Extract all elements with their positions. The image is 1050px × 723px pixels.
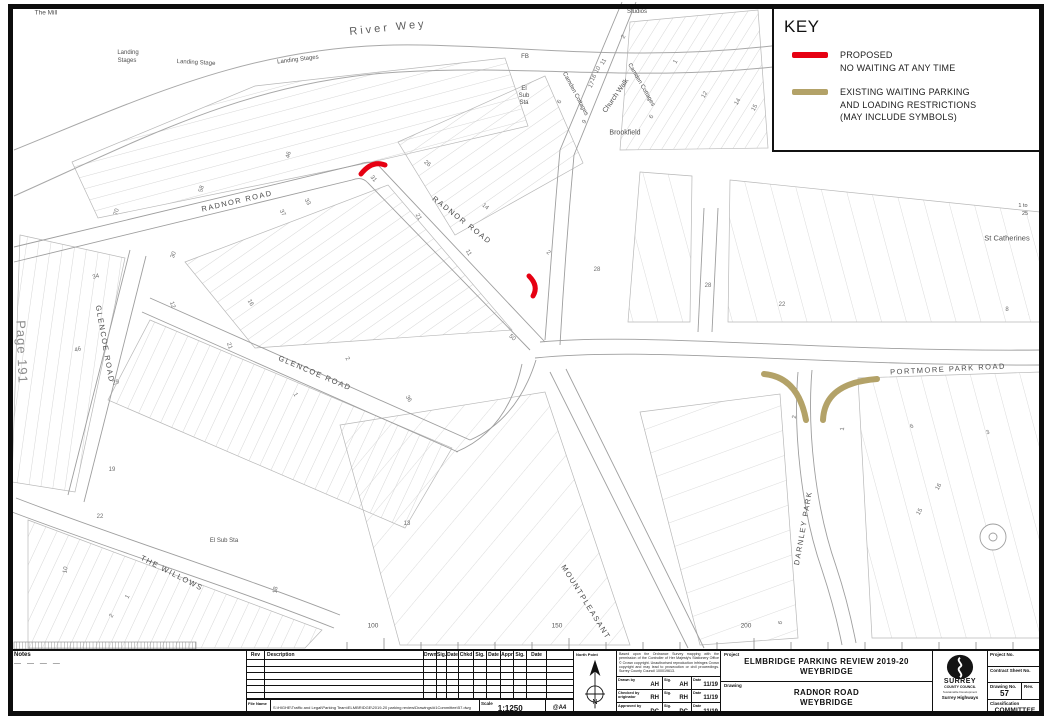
checked-by-value: RH: [650, 695, 659, 701]
north-point-box: North Point N: [574, 651, 617, 716]
contract-sheet-no-label: Contract Sheet No.: [990, 668, 1040, 673]
classification-label: Classification: [990, 701, 1040, 706]
key-proposed-line2: NO WAITING AT ANY TIME: [840, 62, 955, 75]
col-chkd: Chkd: [459, 651, 474, 659]
project-no-label: Project No.: [990, 652, 1040, 657]
revision-header: Rev Description Drwn Sig. Date Chkd Sig.…: [247, 651, 573, 660]
date-value: 11/19: [703, 682, 718, 688]
file-name-value: S:\HIGHE\Traffic and Legal\Parking Team\…: [271, 700, 479, 716]
col-sig: Sig.: [514, 651, 527, 659]
key-item-existing: EXISTING WAITING PARKING AND LOADING RES…: [784, 86, 1030, 124]
status-value: COMMITTEE: [990, 707, 1040, 714]
paper-size: @A4: [545, 700, 573, 716]
drawing-no-value: 57: [990, 689, 1019, 698]
revision-table: Rev Description Drwn Sig. Date Chkd Sig.…: [247, 651, 574, 716]
svg-text:N: N: [592, 697, 597, 706]
notes-placeholder: — — — —: [14, 660, 243, 667]
date-value: 11/19: [703, 709, 718, 715]
surrey-logo: [939, 653, 981, 681]
signoff-row-drawn: Drawn by AH Sig. AH Date 11/19: [617, 677, 721, 690]
col-description: Description: [265, 651, 424, 659]
project-title-line1: ELMBRIDGE PARKING REVIEW 2019-20: [724, 657, 929, 667]
title-block: Notes — — — — Rev Description Drwn Sig. …: [11, 649, 1042, 716]
notes-box: Notes — — — —: [11, 651, 247, 716]
proposed-swatch: [792, 52, 828, 58]
revision-rows: [247, 660, 573, 699]
rev-cell: Rev.: [1022, 683, 1042, 699]
sheet-label: SHEET: [895, 710, 912, 715]
date-label: Date: [693, 691, 701, 695]
notes-label: Notes: [14, 653, 243, 658]
drawing-no-cell: Drawing No. 57: [988, 683, 1022, 699]
key-title: KEY: [784, 17, 1030, 37]
signoff-box: Based upon the Ordnance Survey mapping w…: [617, 651, 721, 716]
sig-label: Sig.: [664, 691, 671, 695]
approved-by-value: DC: [650, 709, 659, 715]
key-existing-line3: (MAY INCLUDE SYMBOLS): [840, 111, 976, 124]
col-sig: Sig.: [474, 651, 487, 659]
of-label: OF: [921, 710, 928, 715]
drawn-by-label: Drawn by: [618, 678, 635, 682]
sig-value: DC: [679, 709, 688, 715]
drawing-title-line2: WEYBRIDGE: [724, 698, 929, 708]
scale-label: Scale: [480, 700, 494, 716]
drawing-title-line1: RADNOR ROAD: [724, 688, 929, 698]
key-existing-line2: AND LOADING RESTRICTIONS: [840, 99, 976, 112]
sig-value: AH: [679, 682, 688, 688]
date-value: 11/19: [703, 695, 718, 701]
file-strip: File Name S:\HIGHE\Traffic and Legal\Par…: [247, 699, 573, 716]
signoff-row-checked: Checked by originator RH Sig. RH Date 11…: [617, 690, 721, 703]
key-existing-line1: EXISTING WAITING PARKING: [840, 86, 976, 99]
col-spare: [547, 651, 574, 659]
os-copyright-text: Based upon the Ordnance Survey mapping w…: [617, 651, 721, 677]
embankment-hatch: [14, 642, 196, 649]
org-name2: COUNTY COUNCIL: [944, 685, 976, 689]
sheet-of: SHEET OF: [887, 710, 928, 715]
org-dept: Surrey Highways: [942, 695, 979, 701]
col-date: Date: [527, 651, 547, 659]
org-tagline: Sustainable Development: [943, 690, 977, 694]
drawn-by-value: AH: [650, 682, 659, 688]
date-label: Date: [693, 678, 701, 682]
scale-value: 1:1250: [498, 704, 523, 713]
drawing-section: Drawing RADNOR ROAD WEYBRIDGE SHEET OF: [721, 682, 932, 716]
drawing-sheet: The MillRiver WeyLandingStagesLanding St…: [0, 0, 1050, 723]
col-appr: Appr: [501, 651, 514, 659]
scale-cell: Scale 1:1250: [479, 700, 545, 716]
project-title-line2: WEYBRIDGE: [724, 667, 929, 677]
signoff-row-approved: Approved by DC Sig. DC Date 11/19: [617, 703, 721, 716]
organisation-box: SURREY COUNTY COUNCIL Sustainable Develo…: [933, 651, 988, 716]
rev-label: Rev.: [1024, 684, 1040, 689]
project-section: Project ELMBRIDGE PARKING REVIEW 2019-20…: [721, 651, 932, 682]
map-key: KEY PROPOSED NO WAITING AT ANY TIME EXIS…: [772, 7, 1042, 152]
sig-label: Sig.: [664, 678, 671, 682]
sig-label: Sig.: [664, 704, 671, 708]
sig-value: RH: [679, 695, 688, 701]
file-name-label: File Name: [247, 700, 271, 716]
col-drwn: Drwn: [424, 651, 437, 659]
col-rev: Rev: [247, 651, 265, 659]
date-label: Date: [693, 704, 701, 708]
col-sig: Sig.: [437, 651, 447, 659]
project-box: Project ELMBRIDGE PARKING REVIEW 2019-20…: [721, 651, 933, 716]
col-date: Date: [487, 651, 501, 659]
org-name: SURREY: [944, 678, 976, 685]
approved-by-label: Approved by: [618, 704, 641, 708]
reference-column: Project No. Contract Sheet No. Drawing N…: [988, 651, 1042, 716]
col-date: Date: [447, 651, 459, 659]
north-arrow-icon: N: [577, 657, 613, 713]
key-proposed-line1: PROPOSED: [840, 49, 955, 62]
key-item-proposed: PROPOSED NO WAITING AT ANY TIME: [784, 49, 1030, 74]
existing-swatch: [792, 89, 828, 95]
